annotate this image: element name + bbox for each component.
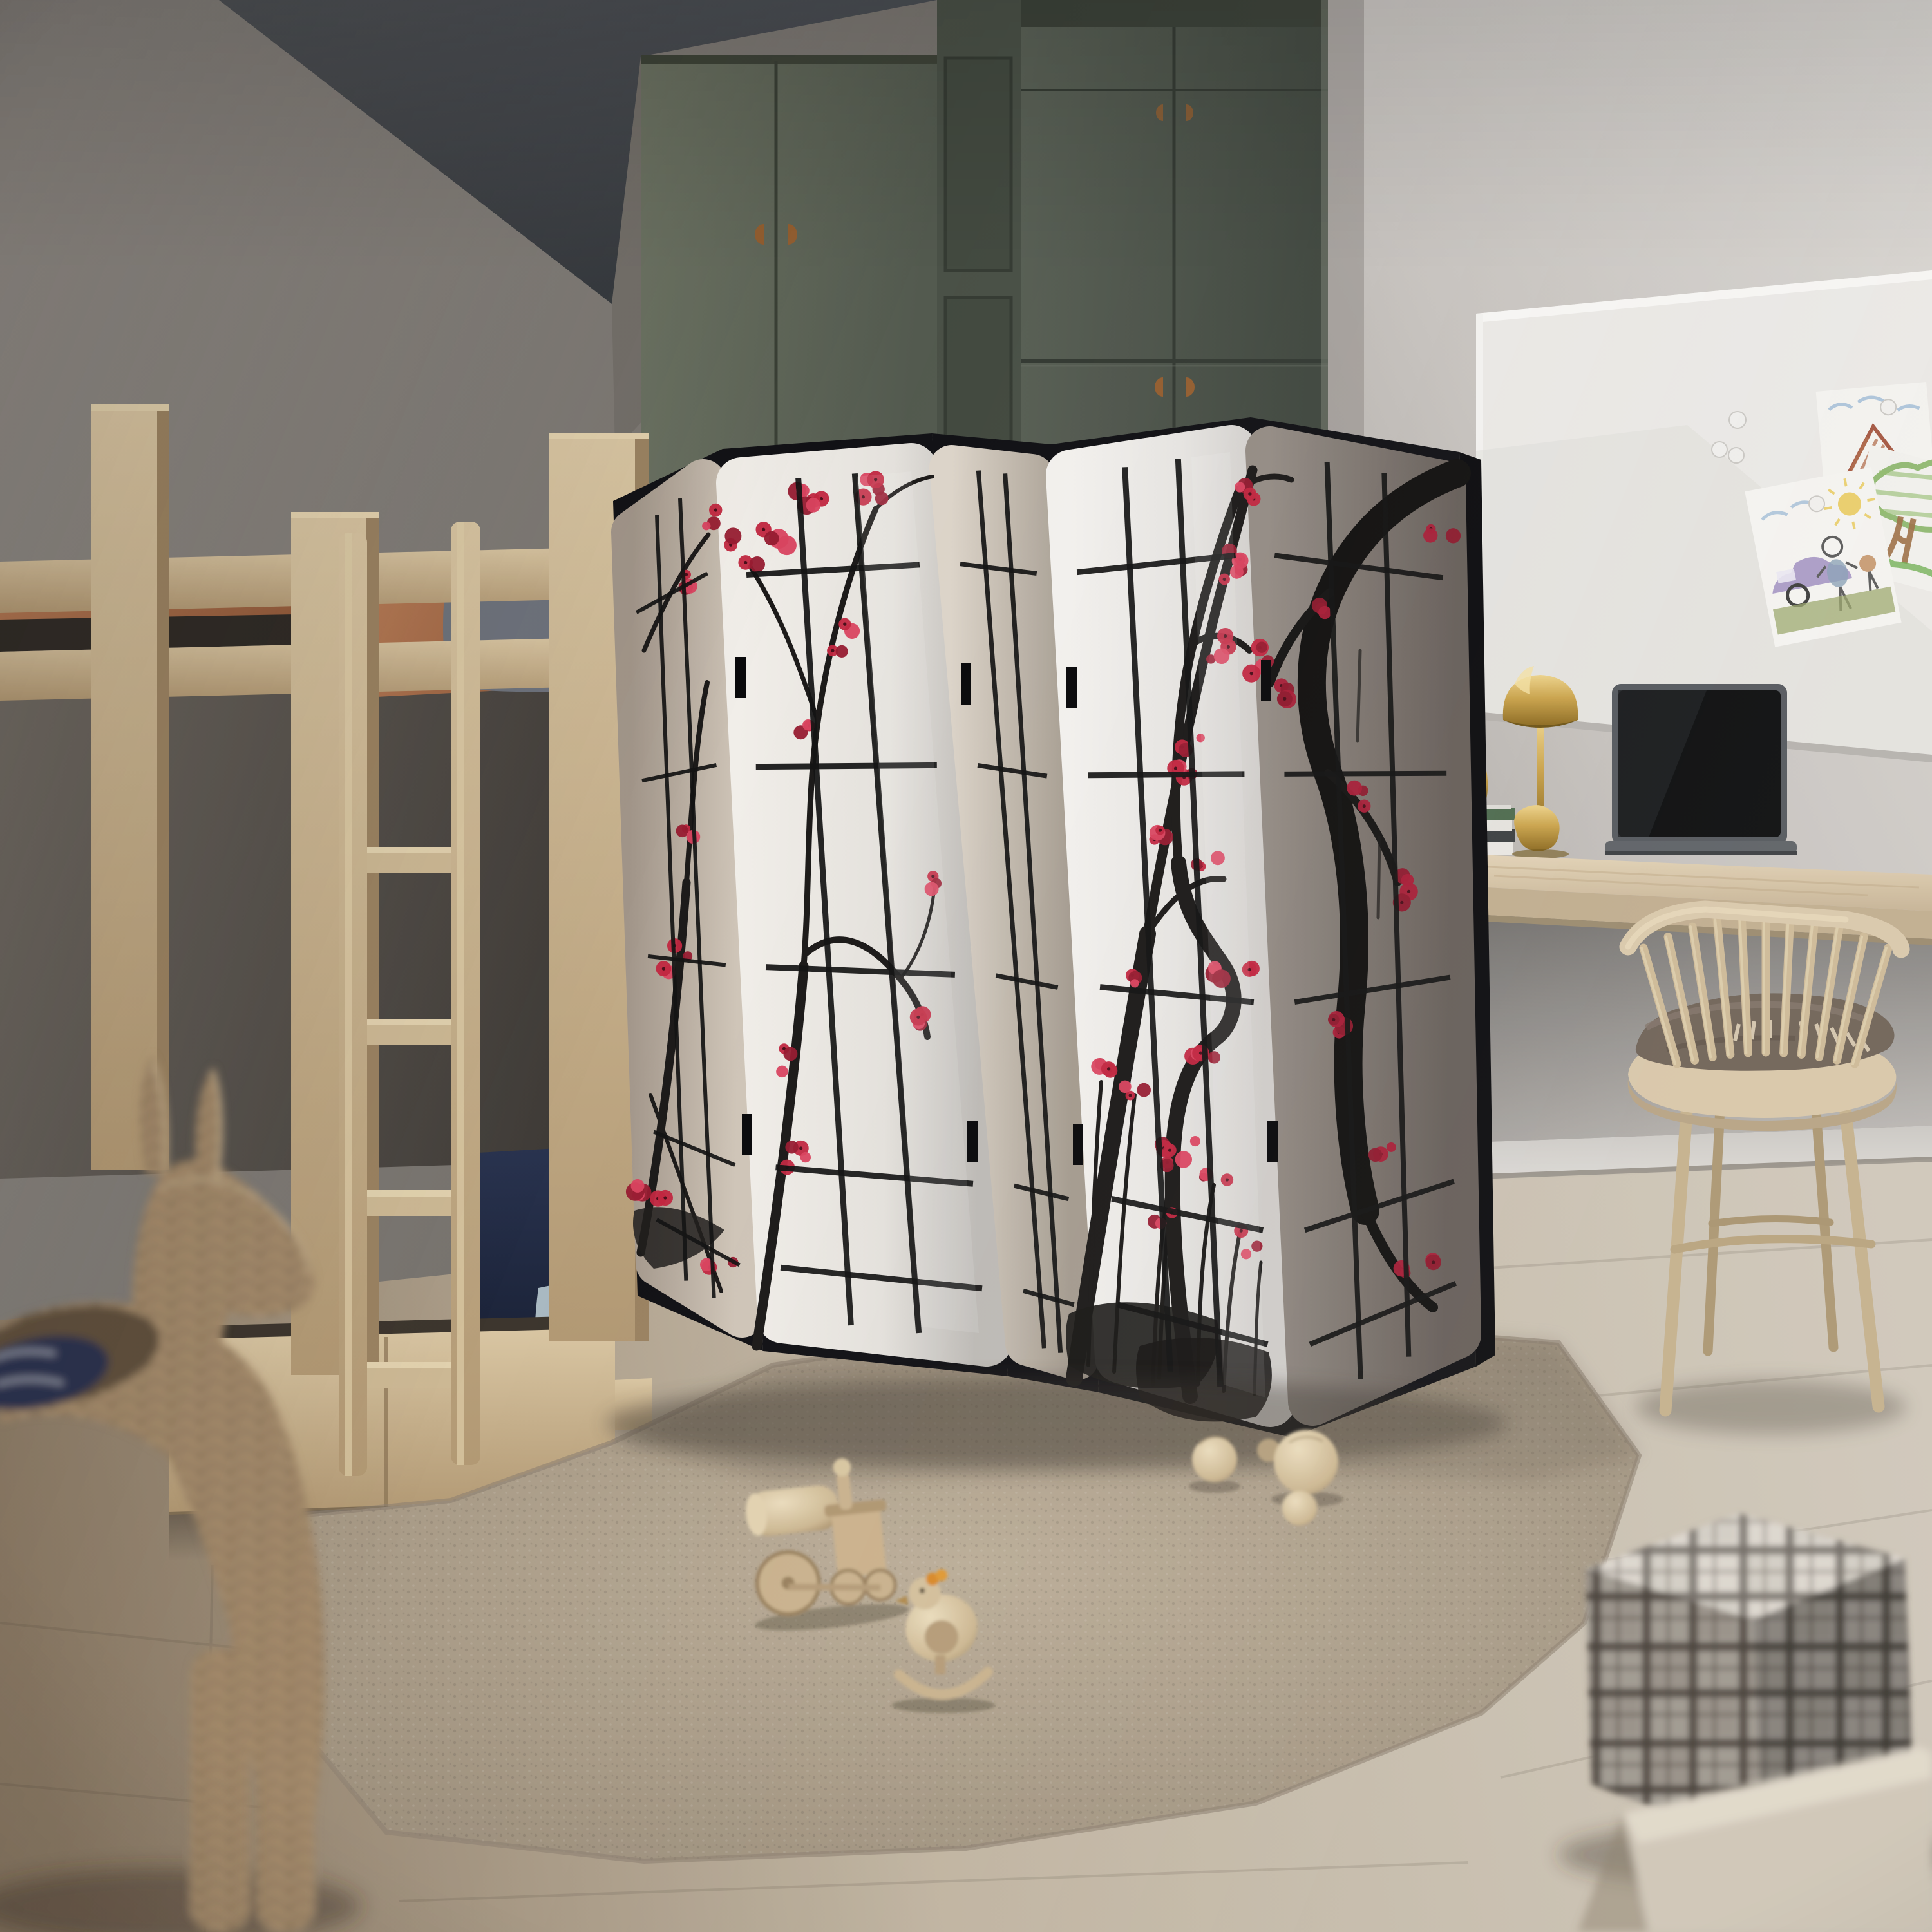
bird-peg — [935, 1655, 945, 1674]
bed-post-side — [366, 512, 379, 1375]
train-cab — [831, 1506, 886, 1578]
leg — [191, 1649, 250, 1932]
wardrobe-far-top-edge — [641, 55, 937, 64]
bed-post-top — [549, 433, 649, 439]
room-divider-screen — [605, 417, 1507, 1468]
bed-post-top — [291, 512, 379, 518]
screen-floor-shadow — [605, 1378, 1507, 1468]
chair-shadow — [1636, 1380, 1906, 1434]
stile-highlight — [345, 533, 352, 1476]
laptop — [1605, 684, 1797, 855]
bed-post-top — [91, 404, 169, 411]
ladder-stile — [451, 522, 480, 1465]
wooden-ball — [1274, 1430, 1338, 1494]
wooden-ball — [1282, 1491, 1317, 1526]
ladder-stile — [339, 533, 367, 1476]
wardrobe-top-face — [1021, 0, 1328, 27]
wardrobe-inset-panel — [945, 58, 1011, 270]
bedroom-scene — [0, 0, 1932, 1932]
scene-canvas — [0, 0, 1932, 1932]
bird-wing — [925, 1620, 958, 1654]
magnet — [1880, 399, 1897, 415]
bed-post-side — [157, 404, 169, 1170]
wooden-ball — [1192, 1437, 1237, 1482]
stile-highlight — [457, 522, 464, 1465]
leg — [256, 1649, 314, 1932]
bird-comb — [936, 1569, 947, 1581]
laptop-base-shadow — [1605, 851, 1797, 855]
bird-eye — [920, 1588, 925, 1593]
